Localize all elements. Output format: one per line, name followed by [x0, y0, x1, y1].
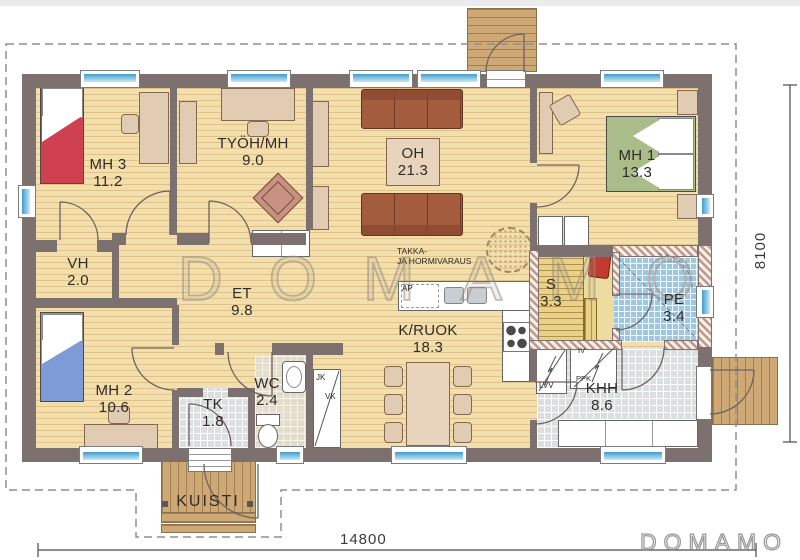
- room-label-sauna: S 3.3: [516, 277, 586, 310]
- label-ap: AP: [402, 284, 413, 293]
- room-label-khh: KHH 8.6: [567, 381, 637, 414]
- side-deck-right: [712, 357, 778, 425]
- room-area: 11.2: [68, 174, 148, 191]
- stove-icon: [503, 322, 530, 352]
- wall-hatched: [529, 340, 622, 350]
- room-name: S: [516, 277, 586, 294]
- room-label-pe: PE 3.4: [639, 292, 709, 325]
- floor-plan-canvas: DOMAMO DOMAMO MH 3 11.2 TYÖH/MH 9.0 OH 2…: [0, 0, 800, 560]
- room-label-mh3: MH 3 11.2: [68, 157, 148, 190]
- room-name: VH: [43, 256, 113, 273]
- room-name: K/RUOK: [388, 323, 468, 340]
- shelf: [312, 101, 329, 167]
- room-label-oh: OH 21.3: [378, 146, 448, 179]
- window: [600, 446, 666, 464]
- room-label-wc: WC 2.4: [232, 376, 302, 409]
- room-name: MH 2: [79, 383, 149, 400]
- entry-steps: [188, 448, 232, 472]
- room-area: 8.6: [567, 398, 637, 415]
- label-ppk: PPK: [576, 375, 591, 384]
- porch-post: [162, 501, 168, 507]
- label-lvv: LVV: [539, 381, 554, 390]
- room-area: 10.6: [79, 400, 149, 417]
- room-name: MH 1: [602, 148, 672, 165]
- nightstand: [677, 194, 698, 219]
- window: [391, 446, 467, 464]
- room-label-kruok: K/RUOK 18.3: [388, 323, 468, 356]
- desk: [221, 88, 295, 121]
- dining-chair: [453, 394, 472, 415]
- room-area: 13.3: [602, 165, 672, 182]
- dining-table: [406, 362, 450, 446]
- wall: [530, 88, 537, 163]
- window: [276, 446, 304, 464]
- porch-post: [247, 501, 253, 507]
- window: [696, 194, 714, 218]
- wall: [272, 343, 343, 355]
- desk: [139, 92, 169, 164]
- dining-chair: [384, 394, 403, 415]
- window: [18, 185, 36, 218]
- wall: [306, 88, 313, 230]
- dining-chair: [453, 366, 472, 387]
- room-area: 9.0: [208, 153, 298, 170]
- porch-edge-board: [161, 524, 256, 533]
- dining-chair: [453, 422, 472, 443]
- porch-edge-board: [161, 512, 256, 523]
- room-name: KUISTI: [173, 493, 243, 511]
- room-area: 9.8: [207, 303, 277, 320]
- sofa: [361, 193, 463, 236]
- room-area: 21.3: [378, 163, 448, 180]
- window: [79, 446, 143, 464]
- wall: [215, 343, 224, 355]
- room-name: ET: [207, 286, 277, 303]
- wall: [36, 298, 177, 308]
- page-edge: [0, 0, 800, 6]
- room-area: 2.4: [232, 393, 302, 410]
- wall: [530, 420, 537, 448]
- watermark-logo: DOMAMO: [640, 529, 788, 556]
- front-door: [486, 70, 526, 88]
- room-name: OH: [378, 146, 448, 163]
- entry-deck-top: [467, 8, 537, 72]
- dining-chair: [384, 422, 403, 443]
- room-name: MH 3: [68, 157, 148, 174]
- room-area: 3.4: [639, 309, 709, 326]
- label-iv: IV: [578, 347, 585, 356]
- room-name: TYÖH/MH: [208, 136, 298, 153]
- dimension-height: 8100: [752, 232, 769, 269]
- room-label-mh2: MH 2 10.6: [79, 383, 149, 416]
- room-name: PE: [639, 292, 709, 309]
- label-jk: JK: [316, 373, 325, 382]
- window: [417, 70, 481, 88]
- wall: [97, 240, 119, 252]
- room-label-mh1: MH 1 13.3: [602, 148, 672, 181]
- fireplace-note-line2: JA HORMIVARAUS: [397, 257, 471, 267]
- wall: [177, 388, 203, 397]
- room-area: 18.3: [388, 340, 468, 357]
- chair: [121, 114, 139, 134]
- room-label-et: ET 9.8: [207, 286, 277, 319]
- utility-door: [696, 366, 712, 420]
- shelf: [312, 186, 329, 230]
- window: [80, 70, 140, 88]
- khh-counter: [558, 420, 698, 447]
- wardrobe: [179, 101, 197, 164]
- room-label-tyoh: TYÖH/MH 9.0: [208, 136, 298, 169]
- window: [227, 70, 291, 88]
- nightstand: [677, 90, 698, 115]
- room-label-vh: VH 2.0: [43, 256, 113, 289]
- wall-hatched: [664, 340, 698, 350]
- dimension-width: 14800: [340, 531, 387, 548]
- wardrobe: [539, 92, 553, 154]
- room-area: 3.3: [516, 294, 586, 311]
- fireplace-note: TAKKA- JA HORMIVARAUS: [397, 247, 471, 267]
- wall: [306, 350, 313, 448]
- dining-chair: [384, 366, 403, 387]
- wall: [170, 88, 177, 235]
- wall: [36, 240, 57, 252]
- room-area: 1.8: [178, 414, 248, 431]
- closet: [564, 216, 589, 247]
- room-name: WC: [232, 376, 302, 393]
- closet: [538, 216, 563, 247]
- window: [600, 70, 664, 88]
- wall: [530, 348, 537, 382]
- bed-single-blue: [40, 312, 84, 402]
- wall: [22, 74, 36, 462]
- room-label-kuisti: KUISTI: [173, 493, 243, 511]
- toilet-icon: [258, 424, 278, 448]
- label-vk: VK: [325, 392, 336, 401]
- room-area: 2.0: [43, 273, 113, 290]
- window: [349, 70, 413, 88]
- sofa: [361, 89, 463, 129]
